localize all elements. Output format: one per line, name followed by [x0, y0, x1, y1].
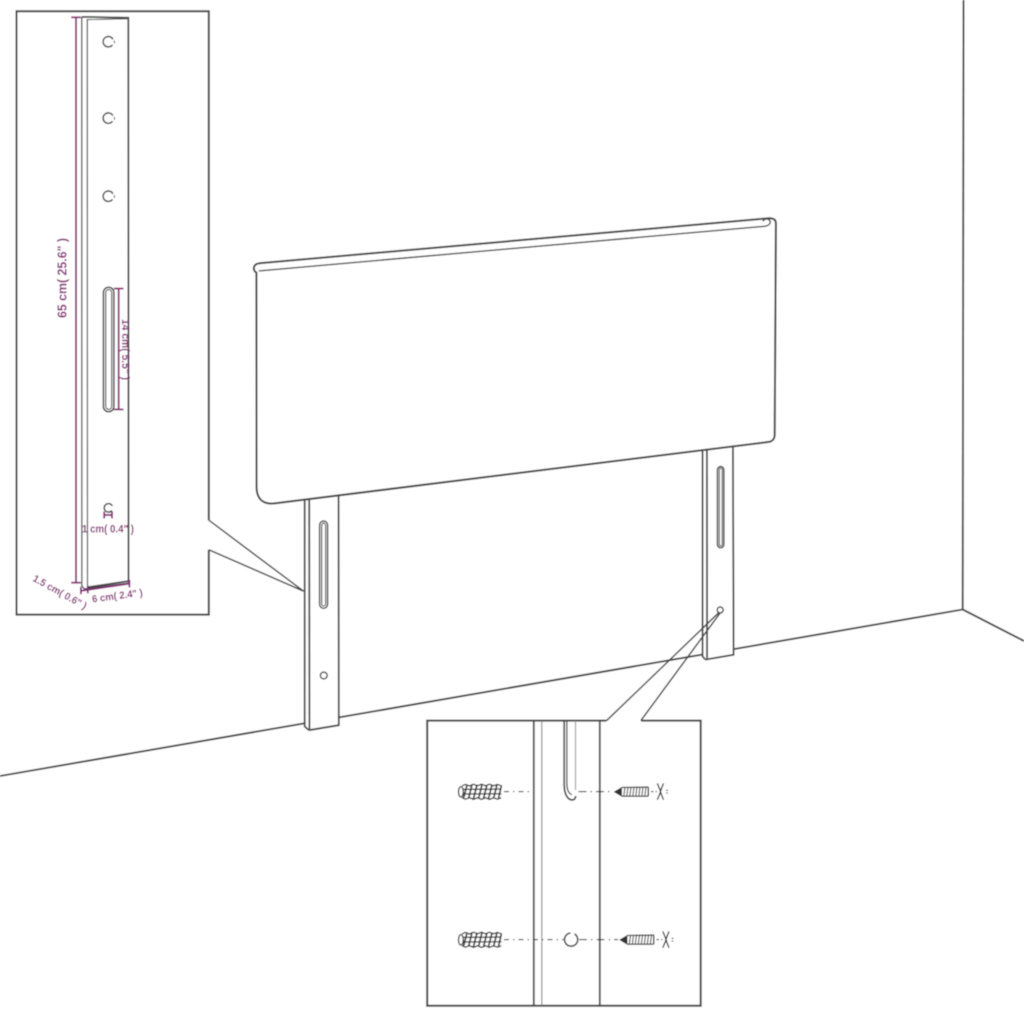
svg-text:65 cm( 25.6" ): 65 cm( 25.6" ) [55, 238, 70, 318]
svg-text:1 cm( 0.4" ): 1 cm( 0.4" ) [82, 524, 134, 536]
svg-text:14 cm( 5.5" ): 14 cm( 5.5" ) [119, 319, 131, 380]
